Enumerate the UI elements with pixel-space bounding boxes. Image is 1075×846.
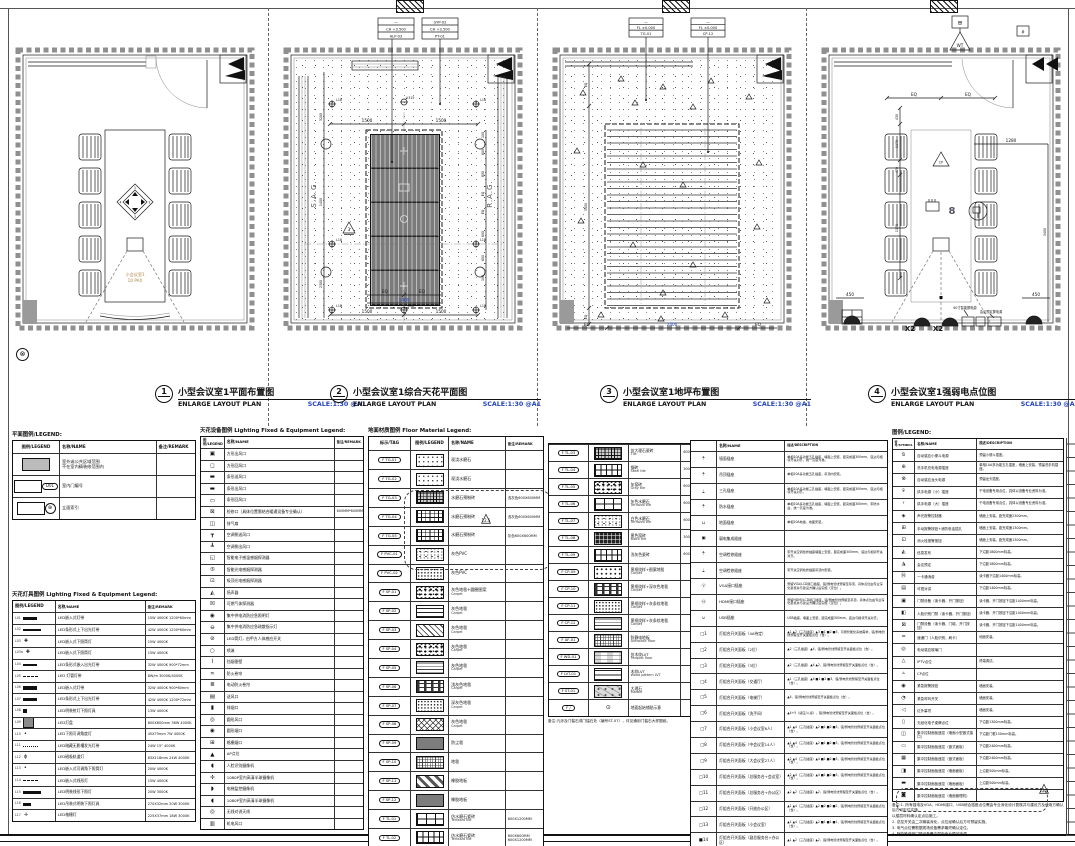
svg-text:小会议室1: 小会议室1 bbox=[125, 271, 145, 278]
svg-text:EQ: EQ bbox=[584, 322, 591, 327]
panel-title-3: 3 小型会议室1地坪布置图 ENLARGE LAYOUT PLANSCALE:1… bbox=[600, 385, 811, 408]
svg-text:3: 3 bbox=[134, 215, 136, 219]
legend-row: F AF-01 防静电地板Antistatic floor bbox=[549, 631, 711, 648]
material-swatch bbox=[594, 685, 622, 698]
svg-text:FL ±0.000: FL ±0.000 bbox=[637, 26, 656, 30]
light-symbol bbox=[23, 664, 37, 667]
svg-text:EQ: EQ bbox=[382, 289, 389, 294]
material-swatch bbox=[416, 643, 444, 656]
legend-row: F SP-07 深灰色地毯Carpet bbox=[369, 696, 543, 715]
legend-row: ◈ 声光报警控制器 墙面上安装，距完成面2300mm。 bbox=[893, 510, 1063, 522]
svg-text:L18: L18 bbox=[480, 304, 486, 308]
svg-text:CP: CP bbox=[939, 161, 943, 165]
equipment-symbol-icon: ◖ bbox=[201, 796, 224, 807]
device-symbol-icon: ▯ bbox=[893, 717, 914, 728]
legend-row: F TL-08 黑色窑砖Black tile 300X300MM bbox=[549, 529, 711, 546]
legend-row: ⊖ 集中供电消防应急疏散指示灯 bbox=[201, 621, 363, 633]
legend-row: L11 LED暗藏无影槽发光灯带 24W 15° 4000K bbox=[13, 740, 195, 752]
panel-separator bbox=[268, 8, 269, 426]
material-tag: F TL-01 bbox=[379, 816, 401, 822]
material-tag: F TL-06 bbox=[558, 501, 580, 507]
socket-symbol-icon: ⍑ bbox=[691, 452, 716, 467]
panel-separator bbox=[806, 8, 807, 426]
device-symbol-icon: ◮ bbox=[893, 559, 914, 570]
device-symbol-icon: ⊕ bbox=[893, 462, 914, 473]
svg-text:CH +3.500: CH +3.500 bbox=[386, 27, 406, 31]
legend-row: ◫ 集中控制面板遥控（墙面小型嵌式接口） 下沿距门框150mm标高。 bbox=[893, 728, 1063, 740]
material-tag: F TG-03 bbox=[378, 495, 400, 501]
svg-text:450: 450 bbox=[1032, 292, 1040, 297]
legend-row: ◧ 人脸识别门禁（读卡器、开门按钮） 读卡器、开门按钮下沿距1400mm标高。 bbox=[893, 607, 1063, 619]
legend-row: F / ⊙ 地面起始铺贴示意 bbox=[549, 699, 711, 716]
legend-row: L09 LED灯盘 600X600mm 36W 4000K bbox=[13, 717, 195, 729]
legend-row: □11 灯组合开关面板（总服务台+办公区） ▲2 ▲2（三孔插座）▲2，强/弱电… bbox=[691, 785, 887, 801]
legend-row: ◖ 人脸识别摄像机 bbox=[201, 760, 363, 772]
detail-number-bubble: 3 bbox=[600, 385, 618, 403]
legend-row: L05 LED 灯管灯带 8W/m 3000K/4000K bbox=[13, 670, 195, 682]
device-symbol-icon: ▦ bbox=[893, 754, 914, 765]
svg-text:⊞: ⊞ bbox=[958, 21, 963, 27]
legend-row: F TL-09 浅灰色瓷砖 600X600MM bbox=[549, 546, 711, 563]
legend-row: ◱ 智能电子感温感烟探测器 bbox=[201, 552, 363, 564]
panel-title-en: ENLARGE LAYOUT PLAN bbox=[353, 401, 436, 408]
legend-row: F LVT-01 木纹LVTWood pattern LVT bbox=[549, 665, 711, 682]
plan-panel-floor: — FL ±0.000 TG-01 — FL ±0.000 CP-12 EQ 3… bbox=[543, 12, 801, 358]
legend-row: ⍊ 三孔插座 单相10A多功能三孔插座，墙面上安装，距完成面300mm，底边与相… bbox=[691, 483, 887, 499]
table-header: 图例/LEGEND名称/NAME备注/REMARK bbox=[13, 601, 195, 612]
socket-symbol-icon: □9 bbox=[691, 754, 716, 769]
material-tag: F TL-05 bbox=[558, 484, 580, 490]
legend-row: ⊔ 地面插座 单相10A地插，地面安装。 bbox=[691, 515, 887, 531]
material-tag: F PVC-01 bbox=[377, 551, 402, 557]
material-swatch bbox=[416, 699, 444, 712]
light-symbol bbox=[23, 709, 27, 713]
legend-row: □6 灯组合开关面板（洗手间） ▲4+5（感应/人感），强/弱电管线预留至开关面… bbox=[691, 705, 887, 721]
equipment-symbol-icon: ▤ bbox=[201, 692, 224, 703]
material-swatch bbox=[594, 498, 622, 511]
device-symbol-icon: ◭ bbox=[893, 547, 914, 558]
socket-symbol-icon: ⊔ bbox=[691, 516, 716, 531]
legend-title: 天花设备图例 Lighting Fixed & Equipment Legend… bbox=[200, 428, 364, 434]
legend-row: L08 LED明装射灯下照灯具 13W 4000K bbox=[13, 705, 195, 717]
table-header: 符号/SYMBOL名称/NAME描述/DESCRIPTION bbox=[893, 439, 1063, 449]
svg-text:2: 2 bbox=[148, 201, 150, 205]
floor-finish-drawing: — FL ±0.000 TG-01 — FL ±0.000 CP-12 EQ 3… bbox=[543, 12, 801, 358]
legend-row: F SP-08 灰色地毯Carpet bbox=[369, 715, 543, 734]
legend-row: ⊕ 立面索引 bbox=[13, 497, 195, 519]
device-symbol-icon: ⍉ bbox=[893, 450, 914, 461]
svg-text:10 PAX: 10 PAX bbox=[128, 278, 143, 283]
equipment-symbol-icon: ⊖ bbox=[201, 622, 224, 633]
svg-text:L18: L18 bbox=[408, 304, 414, 308]
legend-row: F SP-09 防尘毯 bbox=[369, 734, 543, 753]
legend-row: ✢ 1080P室内高清半球摄像机 bbox=[201, 772, 363, 784]
panel-title-zh: 小型会议室1地坪布置图 bbox=[623, 385, 811, 400]
legend-row: ≣ 电动防火卷帘 bbox=[201, 679, 363, 691]
legend-row: ▤ 可视对讲 下沿距1400mm标高。 bbox=[893, 583, 1063, 595]
material-tag: F TG-05 bbox=[378, 533, 400, 539]
ceiling-equipment-legend: 天花设备图例 Lighting Fixed & Equipment Legend… bbox=[200, 428, 364, 830]
plan-panel-electrical: ⊞ WT # CP 8 EQEQ 430 1170 470 1130 1280 … bbox=[812, 12, 1070, 358]
material-tag: F SP-03 bbox=[379, 627, 401, 633]
equipment-symbol-icon: ◖ bbox=[201, 761, 224, 772]
equipment-symbol-icon: ▣ bbox=[201, 449, 224, 460]
legend-row: Ⓝ 一卡通消费 读卡器下沿距1400mm标高。 bbox=[893, 571, 1063, 583]
device-symbol-icon: ▵ bbox=[893, 669, 914, 680]
svg-text:FL ±0.000: FL ±0.000 bbox=[699, 26, 718, 30]
material-swatch bbox=[594, 600, 622, 613]
detail-number-bubble: 1 bbox=[155, 385, 173, 403]
legend-row: F TL-07 白色水磨石Terrazzo tile 600X1200MM bbox=[549, 512, 711, 529]
svg-text:L18: L18 bbox=[336, 238, 342, 242]
light-glyph: ✚ bbox=[24, 639, 28, 645]
revision-triangle: △12.5 bbox=[478, 512, 494, 526]
equipment-symbol-icon: ◎ bbox=[201, 715, 224, 726]
equipment-symbol-icon: ▥ bbox=[201, 819, 224, 830]
light-glyph: • bbox=[24, 732, 27, 738]
svg-text:TG-01: TG-01 bbox=[640, 32, 652, 36]
equipment-symbol-icon: ⊡ bbox=[201, 576, 224, 587]
svg-text:470: 470 bbox=[895, 167, 899, 173]
equipment-symbol-icon: ◗ bbox=[201, 784, 224, 795]
material-tag: F SP-08 bbox=[379, 721, 401, 727]
revision-triangle: △12.5 bbox=[1036, 782, 1052, 796]
equipment-symbol-icon: ◉ bbox=[201, 611, 224, 622]
svg-text:3200: 3200 bbox=[319, 113, 323, 121]
plan-legend: 平面图例/LEGEND: 图例/LEGEND名称/NAME备注/REMARK 室… bbox=[12, 432, 196, 520]
legend-symbol: D01 bbox=[42, 483, 58, 490]
svg-text:—: — bbox=[706, 20, 710, 24]
material-swatch bbox=[594, 464, 622, 477]
legend-row: F TL-03 仿大理石瓷砖Tile 600X600MM bbox=[549, 444, 711, 461]
material-tag: F CP-10 bbox=[557, 586, 579, 592]
legend-row: L07 LED条形式上下出光灯带 42W 4000K 1200*72mm bbox=[13, 693, 195, 705]
legend-row: ◉ 集中供电消防应急照明灯 bbox=[201, 610, 363, 622]
device-symbol-icon: ◙ bbox=[893, 790, 914, 801]
socket-symbol-icon: □6 bbox=[691, 706, 716, 721]
equipment-symbol-icon: ⊠ bbox=[201, 507, 224, 518]
legend-row: Ⓥ VGA接口插座 预留VGA/LCD接口插座，强/弱电管线预留至吊顶，具体点位… bbox=[691, 578, 887, 594]
equipment-symbol-icon: ≣ bbox=[201, 680, 224, 691]
symbols-legend: 图例/LEGEND: 符号/SYMBOL名称/NAME描述/DESCRIPTIO… bbox=[892, 430, 1064, 837]
material-swatch bbox=[594, 447, 622, 460]
material-tag: F WD-01 bbox=[557, 654, 581, 660]
ceiling-lights-legend: 天花灯具图例 Lighting Fixed & Equipment Legend… bbox=[12, 592, 196, 822]
device-symbol-icon: ▬ bbox=[893, 778, 914, 789]
panel-title-en: ENLARGE LAYOUT PLAN bbox=[623, 401, 706, 408]
svg-text:3400: 3400 bbox=[584, 203, 588, 211]
legend-row: ▮ 排烟口 bbox=[201, 702, 363, 714]
socket-symbol-icon: ⍑ bbox=[691, 547, 716, 562]
device-symbol-icon: ◉ bbox=[893, 681, 914, 692]
equipment-symbol-icon: ◱ bbox=[201, 553, 224, 564]
device-symbol-icon: ◫ bbox=[893, 729, 914, 740]
svg-text:EQ: EQ bbox=[965, 92, 972, 97]
legend-row: ▬ 条形送风口 bbox=[201, 471, 363, 483]
svg-text:600: 600 bbox=[481, 231, 485, 237]
legend-row: L10• LED下照可调角度灯 45X75mm 7W 4000K bbox=[13, 728, 195, 740]
legend-row: F TL-06 灰色水磨石Terrazzo tile 600X1200MM bbox=[549, 495, 711, 512]
material-tag: F TG-02 bbox=[378, 476, 400, 482]
legend-row: L15 LED明装线形下照灯 20W 3000K bbox=[13, 786, 195, 798]
light-symbol bbox=[23, 676, 38, 677]
legend-row: F SP-12 橡胶地板 bbox=[369, 790, 543, 809]
table-header: 标示/TAG图例/LEGEND名称/NAME备注/REMARK bbox=[369, 437, 543, 450]
adjacent-table-edge bbox=[1066, 438, 1075, 836]
legend-row: △ IPTV点位 终端调试。 bbox=[893, 656, 1063, 668]
legend-row: ▭ 集中控制面板遥控（嵌式面板） 下沿距2400mm标高。 bbox=[893, 741, 1063, 753]
legend-title: 地面材质图例 Floor Material Legend: bbox=[368, 428, 544, 434]
socket-symbol-icon: ⍑ bbox=[691, 500, 716, 515]
legend-row: L14 LED嵌入式线形灯 15W 4000K bbox=[13, 775, 195, 787]
legend-row: L02 LED条形式上下出光灯带 42W 4000K 1200*60mm bbox=[13, 624, 195, 636]
legend-row: L12ϕ LED磁吸轨道灯 63X118mm 24W 4000K bbox=[13, 751, 195, 763]
svg-text:CP-12: CP-12 bbox=[703, 32, 713, 36]
material-swatch bbox=[594, 481, 622, 494]
material-swatch bbox=[416, 586, 444, 599]
equipment-symbol-icon: ◫ bbox=[201, 518, 224, 529]
legend-row: 室外或公共区域范围不在室内精装修范围内 bbox=[13, 453, 195, 475]
material-tag: F CP-09 bbox=[557, 569, 579, 575]
legend-row: F PVC-02 灰色PVC bbox=[369, 564, 543, 583]
legend-row: ▲ AP点位 bbox=[201, 748, 363, 760]
svg-text:100: 100 bbox=[481, 275, 485, 281]
socket-symbol-icon: □8 bbox=[691, 738, 716, 753]
svg-text:2400: 2400 bbox=[667, 322, 678, 327]
material-tag: F SP-10 bbox=[379, 759, 401, 765]
socket-symbol-icon: ⍑ bbox=[691, 468, 716, 483]
legend-row: ◮ 会议预定 下沿距1800mm标高。 bbox=[893, 558, 1063, 570]
legend-row: ◉ 紧急报警按钮 墙面安装。 bbox=[893, 680, 1063, 692]
svg-text:1130: 1130 bbox=[895, 224, 899, 232]
svg-text:1500: 1500 bbox=[436, 309, 447, 314]
floor-material-legend: 地面材质图例 Floor Material Legend: 标示/TAG图例/L… bbox=[368, 428, 544, 846]
light-symbol bbox=[23, 617, 37, 620]
legend-row: □2 灯组合开关面板（2位） ▲2（三孔插座）▲4，强/弱电管线预留至开关面板点… bbox=[691, 642, 887, 658]
svg-text:L18: L18 bbox=[336, 98, 342, 102]
material-tag: F CP-12 bbox=[557, 620, 579, 626]
legend-row: ◭ 信息发布 下沿距1800mm标高。 bbox=[893, 546, 1063, 558]
light-glyph: ✚ bbox=[26, 650, 30, 656]
legend-row: D01 室内门编号 bbox=[13, 475, 195, 497]
legend-row: F TL-05 灰窑砖Gray tile 600X600MM bbox=[549, 478, 711, 495]
legend-row: ⌇ 挡烟垂壁 bbox=[201, 656, 363, 668]
material-tag: F CP-11 bbox=[557, 603, 579, 609]
legend-row: F TG-03 水磨石预制砖 浅灰色600X600MM bbox=[369, 488, 543, 507]
legend-row: ┻ 空调侧出风口 bbox=[201, 541, 363, 553]
legend-row: L04 LED条形式嵌入出光灯带 32W 4000K 900*72mm bbox=[13, 659, 195, 671]
light-glyph: ϕ bbox=[24, 755, 27, 761]
equipment-symbol-icon: ✢ bbox=[201, 773, 224, 784]
legend-row: ┳ 空调侧送风口 bbox=[201, 529, 363, 541]
socket-symbol-icon: □7 bbox=[691, 722, 716, 737]
legend-row: ⍟ 烘手电源（小）插座 干电设备专用点位，具体以设备专业资料为准。 bbox=[893, 486, 1063, 498]
legend-row: ⍣ 烘手电源（大）插座 干电设备专用点位，具体以设备专业资料为准。 bbox=[893, 498, 1063, 510]
device-symbol-icon: ⊗ bbox=[893, 474, 914, 485]
material-swatch bbox=[416, 718, 444, 731]
svg-text:L18: L18 bbox=[480, 98, 486, 102]
light-symbol bbox=[23, 746, 38, 747]
material-swatch bbox=[416, 529, 444, 542]
material-swatch bbox=[594, 617, 622, 630]
legend-row: ▬ 条形出风口 bbox=[201, 483, 363, 495]
light-symbol bbox=[23, 718, 34, 729]
legend-row: ⊘ LED筒灯，由甲方人体感应开关 bbox=[201, 633, 363, 645]
material-swatch bbox=[416, 737, 444, 750]
svg-text:8: 8 bbox=[949, 206, 956, 217]
svg-text:WT: WT bbox=[957, 43, 964, 48]
legend-row: F SP-01 灰色地毯+圆圈图案Carpet bbox=[369, 582, 543, 601]
legend-row: ◔ 紧急呼叫开关 墙面安装。 bbox=[893, 692, 1063, 704]
svg-text:S.A.G.: S.A.G. bbox=[310, 180, 318, 207]
legend-row: □4 灯组合开关面板（交通厅） ▲1（三孔插座）▲4 ■1 ■2 ■3，强/弱电… bbox=[691, 673, 887, 689]
equipment-symbol-icon: ⊘ bbox=[201, 634, 224, 645]
device-symbol-icon: ▭ bbox=[893, 742, 914, 753]
plan-panel-ceiling: S.A.G. R.A.G. L18 L18 L18 L18 L18 L18 L1… bbox=[274, 12, 532, 358]
material-swatch bbox=[416, 491, 444, 504]
legend-row: ◻ 方形回风口 bbox=[201, 460, 363, 472]
legend-row: ⍑ 墙面插座 单相10A多功能五孔插座，墙面上安装，距完成面300mm，底边与相… bbox=[691, 451, 887, 467]
socket-symbol-icon: □1 bbox=[691, 627, 716, 642]
panel-title-2: 2 小型会议室1综合天花平面图 ENLARGE LAYOUT PLANSCALE… bbox=[330, 385, 541, 408]
svg-text:EQ: EQ bbox=[419, 289, 426, 294]
svg-text:4: 4 bbox=[119, 201, 121, 205]
legend-row: F CP-11 黑框纹样+灰条纹地毯Carpet bbox=[549, 597, 711, 614]
equipment-symbol-icon: ⑤ bbox=[201, 565, 224, 576]
device-symbol-icon: ◨ bbox=[893, 766, 914, 777]
legend-row: ◗ 电梯监控摄像机 bbox=[201, 783, 363, 795]
legend-symbol: ⊕ bbox=[45, 503, 56, 514]
legend-row: F ST-01 大理石Marble bbox=[549, 682, 711, 699]
legend-note-line: 3. 电气点位需根据现场设备需求最终确认定位。 bbox=[892, 826, 1064, 831]
legend-row: ⍊ 空调检修插座 带开关空调检修插座吊顶内安装。 bbox=[691, 562, 887, 578]
legend-row: ⍉ 自动感应小便斗电源 预留小便斗插座。 bbox=[893, 449, 1063, 461]
table-header: 名称/NAME描述/DESCRIPTION bbox=[691, 441, 887, 451]
material-swatch bbox=[416, 454, 444, 467]
svg-text:600: 600 bbox=[481, 255, 485, 261]
socket-symbol-icon: ⍊ bbox=[691, 484, 716, 499]
svg-text:1400: 1400 bbox=[399, 298, 410, 303]
equipment-symbol-icon: ◻ bbox=[201, 461, 224, 472]
device-symbol-icon: ◔ bbox=[893, 693, 914, 704]
legend-row: ⍑ 吊顶插座 单相10A多功能五孔插座，吊顶内安装。 bbox=[691, 467, 887, 483]
light-symbol bbox=[23, 629, 41, 632]
legend-row: ◫ 排气扇 bbox=[201, 517, 363, 529]
material-tag: F SP-02 bbox=[379, 608, 401, 614]
legend-row: F CP-09 黑框纹样+图案地毯Carpet bbox=[549, 563, 711, 580]
material-tag: F / bbox=[562, 705, 575, 711]
drawing-sheet: ⊗ 1 2 3 4 bbox=[0, 0, 1075, 846]
light-symbol bbox=[23, 686, 37, 691]
equipment-symbol-icon: ┳ bbox=[201, 530, 224, 541]
material-swatch bbox=[416, 661, 444, 674]
material-tag: F TL-02 bbox=[379, 835, 401, 841]
legend-row: L16 LED吊装式明装下照灯具 270X32mm 20W 3000K bbox=[13, 798, 195, 810]
legend-row: ⊍ USB插座 USB插座，墙面上安装，距完成面300mm，底边与相邻开关对齐。 bbox=[691, 610, 887, 626]
material-tag: F ST-01 bbox=[558, 688, 580, 694]
table-header: 图例/LEGEND名称/NAME备注/REMARK bbox=[201, 437, 363, 448]
material-swatch: ⊙ bbox=[606, 705, 611, 712]
legend-row: F SP-11 橡胶地板 bbox=[369, 771, 543, 790]
legend-note-line: 备注:1. 所有强电及VGA、HDMI接口、USB综合插座点位需由专业深化设计复… bbox=[892, 803, 1064, 813]
legend-row: L01 LED嵌入式灯带 15W 4000K 1200*60mm bbox=[13, 612, 195, 624]
legend-row: F TL-01 仿水磨石瓷砖Terrazzo tile 600X1200MM bbox=[369, 809, 543, 828]
svg-text:1400: 1400 bbox=[319, 198, 323, 206]
legend-row: ◖ 1080P室内高清半球摄像机 bbox=[201, 795, 363, 807]
material-tag: F SP-01 bbox=[379, 589, 401, 595]
device-symbol-icon: ▣ bbox=[893, 596, 914, 607]
material-swatch bbox=[416, 756, 444, 769]
socket-symbol-icon: Ⓗ bbox=[691, 595, 716, 610]
material-tag: F SP-04 bbox=[379, 646, 401, 652]
material-swatch bbox=[416, 831, 444, 844]
material-swatch bbox=[416, 624, 444, 637]
floor-legend-note: 备注:凡涉及门槛石或门槛石处（编号ST-07），详见通用门槛石大样图纸。 bbox=[548, 719, 712, 724]
device-symbol-icon: ◎ bbox=[893, 644, 914, 655]
svg-text:2300: 2300 bbox=[319, 280, 323, 288]
socket-symbol-icon: □12 bbox=[691, 802, 716, 817]
legend-row: ⊞ 手动报警按钮+消防电话插孔 墙面上安装，距完成面1300mm。 bbox=[893, 522, 1063, 534]
svg-text:450: 450 bbox=[846, 292, 854, 297]
svg-text:430: 430 bbox=[895, 114, 899, 120]
socket-symbol-icon: ▣ bbox=[691, 531, 716, 546]
table-header: 图例/LEGEND名称/NAME备注/REMARK bbox=[13, 441, 195, 453]
material-tag: F TL-09 bbox=[558, 552, 580, 558]
socket-symbol-icon: ⍊ bbox=[691, 563, 716, 578]
legend-row: ▤ 送风口 bbox=[201, 691, 363, 703]
equipment-symbol-icon: ▮ bbox=[201, 703, 224, 714]
material-tag: F TG-04 bbox=[378, 514, 400, 520]
legend-row: ⊠ 门禁设备（读卡器、门磁、开门按钮） 读卡器、开门按钮下沿距1400mm标高。 bbox=[893, 619, 1063, 631]
material-swatch bbox=[416, 775, 444, 788]
socket-symbol-icon: □2 bbox=[691, 643, 716, 658]
legend-row: □3 灯组合开关面板（3位） ▲2（三孔插座）▲4 ▲2，强/弱电管线预留至开关… bbox=[691, 658, 887, 674]
socket-symbol-icon: □4 bbox=[691, 674, 716, 689]
legend-row: ▭ 条形回风口 bbox=[201, 494, 363, 506]
material-swatch bbox=[594, 532, 622, 545]
material-swatch bbox=[416, 794, 444, 807]
material-tag: F TL-08 bbox=[558, 535, 580, 541]
socket-symbol-icon: □13 bbox=[691, 817, 716, 832]
material-swatch bbox=[594, 515, 622, 528]
material-swatch bbox=[416, 813, 444, 826]
scale-label: SCALE:1:30 @A1 bbox=[483, 401, 541, 408]
legend-row: F WD-01 仿木纹LVTParquet floor bbox=[549, 648, 711, 665]
legend-row: F SP-04 灰色地毯Carpet bbox=[369, 639, 543, 658]
material-tag: F TG-01 bbox=[378, 457, 400, 463]
svg-text:—: — bbox=[394, 21, 398, 25]
legend-row: ■14 灯组合开关面板（副总服务台+办公区） ▲1 ▲2（三孔插座）▲2，强/弱… bbox=[691, 832, 887, 846]
device-symbol-icon: ⊡ bbox=[893, 535, 914, 546]
material-tag: F TL-03 bbox=[558, 450, 580, 456]
floor-material-legend-2: F TL-03 仿大理石瓷砖Tile 600X600MM F TL-04 钢砖S… bbox=[548, 443, 712, 724]
legend-row: □1 灯组合开关面板（4A待定） ▲1 ▲2（三孔插座）▲3 ■1 ■2 ■3，… bbox=[691, 626, 887, 642]
svg-text:100: 100 bbox=[481, 132, 485, 138]
svg-text:3400: 3400 bbox=[1043, 228, 1047, 236]
socket-symbol-icon: □5 bbox=[691, 690, 716, 705]
legend-row: ◎ 电动感应玻璃门 bbox=[893, 643, 1063, 655]
ceiling-plan-drawing: S.A.G. R.A.G. L18 L18 L18 L18 L18 L18 L1… bbox=[274, 12, 532, 358]
light-symbol bbox=[23, 698, 37, 701]
material-swatch bbox=[594, 583, 622, 596]
material-tag: F PVC-02 bbox=[377, 570, 402, 576]
equipment-symbol-icon: ⊞ bbox=[201, 738, 224, 749]
panel-title-en: ENLARGE LAYOUT PLAN bbox=[178, 401, 261, 408]
legend-row: F TG-02 现浇水磨石 bbox=[369, 469, 543, 488]
legend-row: ⊕ 洗手机充电电源插座 单相10A多功能五孔插座，墙面上安装，预留洗手机插座。 bbox=[893, 461, 1063, 473]
device-symbol-icon: ▤ bbox=[893, 584, 914, 595]
equipment-symbol-icon: ▬ bbox=[201, 472, 224, 483]
